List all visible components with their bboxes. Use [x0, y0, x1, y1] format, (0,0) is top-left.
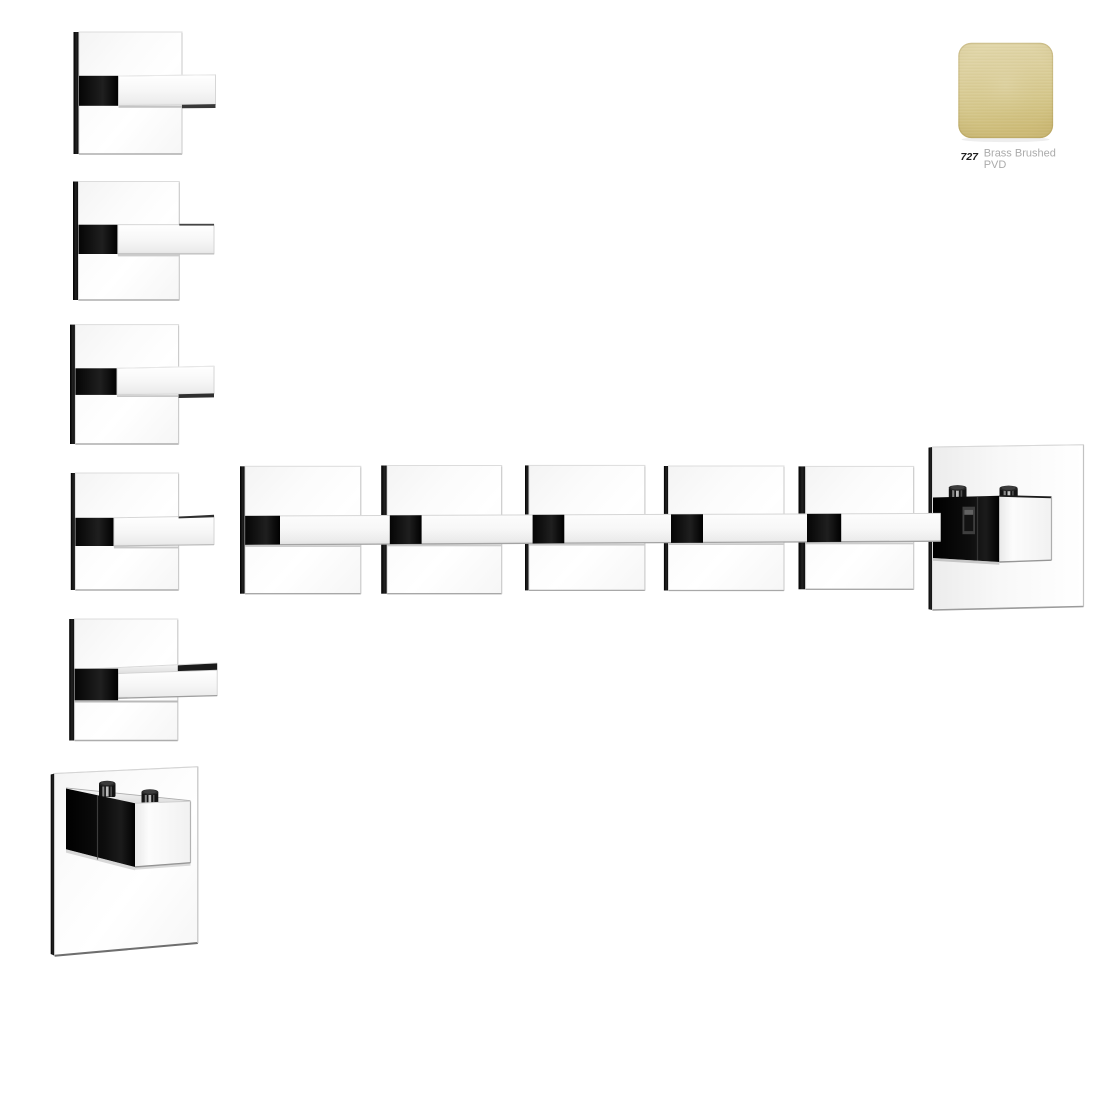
svg-text:Brass Brushed: Brass Brushed — [984, 147, 1056, 159]
svg-text:PVD: PVD — [984, 159, 1007, 171]
svg-text:727: 727 — [961, 151, 980, 163]
